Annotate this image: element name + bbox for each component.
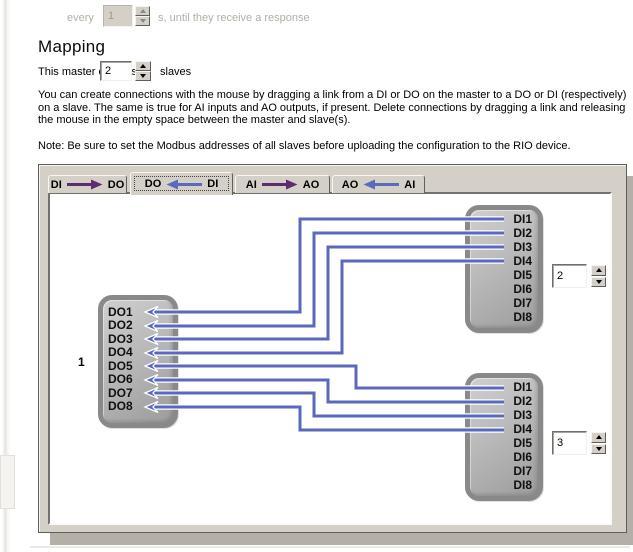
page-edge-box [0, 455, 15, 509]
slave-count-input[interactable]: 2 [100, 61, 132, 81]
instructions-text: You can create connections with the mous… [38, 89, 630, 127]
down-arrow-icon [596, 447, 602, 451]
slave2-pin-di3[interactable]: DI3 [513, 409, 532, 422]
slave1-pin-di2[interactable]: DI2 [513, 227, 532, 240]
page-title: Mapping [38, 37, 105, 57]
retry-interval-prefix-label: every [67, 12, 94, 25]
slave1-pin-di5[interactable]: DI5 [513, 269, 532, 282]
tab-label-left: AI [246, 179, 257, 191]
spin-up-button[interactable] [135, 61, 151, 71]
master-pin-do7[interactable]: DO7 [108, 387, 133, 400]
tab-label-left: DI [51, 179, 62, 191]
slave2-pin-di5[interactable]: DI5 [513, 437, 532, 450]
slave1-pin-di6[interactable]: DI6 [513, 283, 532, 296]
tab-label-right: DO [108, 179, 125, 191]
up-arrow-icon [140, 64, 146, 68]
tab-label-right: DI [207, 178, 218, 190]
slave2-pin-di1[interactable]: DI1 [513, 381, 532, 394]
spin-up-button[interactable] [591, 432, 606, 443]
retry-interval-suffix-label: s, until they receive a response [158, 12, 310, 25]
note-text: Note: Be sure to set the Modbus addresse… [38, 140, 630, 153]
down-arrow-icon [596, 280, 602, 284]
tab-label-left: DO [145, 178, 162, 190]
tab-di-to-do[interactable]: DIDO [48, 175, 127, 193]
slave1-pin-di4[interactable]: DI4 [513, 255, 532, 268]
slave2-pin-di8[interactable]: DI8 [513, 479, 532, 492]
master-pin-do2[interactable]: DO2 [108, 319, 133, 332]
master-pin-do8[interactable]: DO8 [108, 400, 133, 413]
slave1-pin-di7[interactable]: DI7 [513, 297, 532, 310]
spin-up-button[interactable] [135, 6, 150, 16]
master-pin-do4[interactable]: DO4 [108, 346, 133, 359]
slaves-suffix-label: slaves [160, 66, 191, 79]
master-pin-do5[interactable]: DO5 [108, 360, 133, 373]
master-connector: DO1DO2DO3DO4DO5DO6DO7DO8 [98, 295, 178, 428]
tab-ao-to-ai[interactable]: AOAI [332, 175, 425, 193]
slave-count-spinner [135, 61, 151, 81]
slave1-address-input[interactable]: 2 [552, 264, 587, 288]
master-pin-do6[interactable]: DO6 [108, 373, 133, 386]
slave2-address-input[interactable]: 3 [552, 431, 587, 455]
slave1-address-spinner [591, 265, 606, 287]
retry-interval-spinner [135, 6, 150, 26]
tab-do-to-di[interactable]: DODI [130, 172, 233, 195]
spin-up-button[interactable] [591, 265, 606, 276]
slave1-pin-di3[interactable]: DI3 [513, 241, 532, 254]
master-pin-do1[interactable]: DO1 [108, 306, 133, 319]
master-number-label: 1 [78, 355, 85, 369]
arrow-left-icon [166, 179, 202, 190]
arrow-left-icon [363, 179, 399, 190]
up-arrow-icon [596, 268, 602, 272]
tab-ai-to-ao[interactable]: AIAO [235, 175, 330, 193]
slave2-address-spinner [591, 432, 606, 454]
slave-connector-2: DI1DI2DI3DI4DI5DI6DI7DI8 [465, 373, 543, 501]
arrow-right-icon [67, 179, 103, 190]
slave2-pin-di2[interactable]: DI2 [513, 395, 532, 408]
spin-down-button[interactable] [591, 277, 606, 288]
tab-label-right: AI [404, 179, 415, 191]
spin-down-button[interactable] [135, 71, 151, 81]
down-arrow-icon [140, 19, 146, 23]
arrow-right-icon [262, 179, 298, 190]
slave2-pin-di4[interactable]: DI4 [513, 423, 532, 436]
retry-interval-input[interactable]: 1 [103, 5, 133, 27]
slave1-pin-di1[interactable]: DI1 [513, 213, 532, 226]
tab-label-left: AO [342, 179, 359, 191]
mapping-page: every 1 s, until they receive a response… [0, 0, 633, 552]
slave2-pin-di6[interactable]: DI6 [513, 451, 532, 464]
slave-connector-1: DI1DI2DI3DI4DI5DI6DI7DI8 [465, 205, 543, 333]
slave1-pin-di8[interactable]: DI8 [513, 311, 532, 324]
slave2-pin-di7[interactable]: DI7 [513, 465, 532, 478]
page-bottom-edge [30, 546, 630, 548]
down-arrow-icon [140, 74, 146, 78]
master-pin-do3[interactable]: DO3 [108, 333, 133, 346]
up-arrow-icon [140, 9, 146, 13]
tab-label-right: AO [303, 179, 320, 191]
up-arrow-icon [596, 435, 602, 439]
spin-down-button[interactable] [135, 16, 150, 26]
spin-down-button[interactable] [591, 444, 606, 455]
